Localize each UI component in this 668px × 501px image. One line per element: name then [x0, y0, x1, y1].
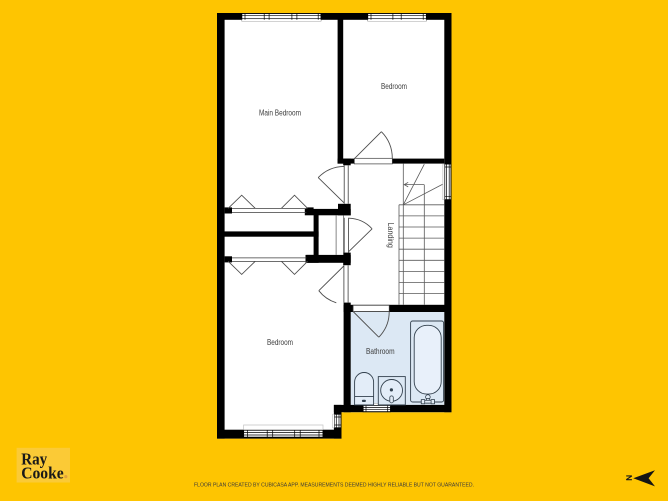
svg-text:Bedroom: Bedroom [267, 338, 293, 347]
svg-text:Cooke: Cooke [21, 464, 64, 483]
svg-text:Bedroom: Bedroom [381, 82, 407, 91]
svg-text:Landing: Landing [386, 223, 395, 248]
svg-text:FLOOR PLAN CREATED BY CUBICASA: FLOOR PLAN CREATED BY CUBICASA APP. MEAS… [194, 482, 474, 488]
svg-text:Main Bedroom: Main Bedroom [259, 109, 301, 118]
svg-text:Bathroom: Bathroom [366, 347, 395, 356]
